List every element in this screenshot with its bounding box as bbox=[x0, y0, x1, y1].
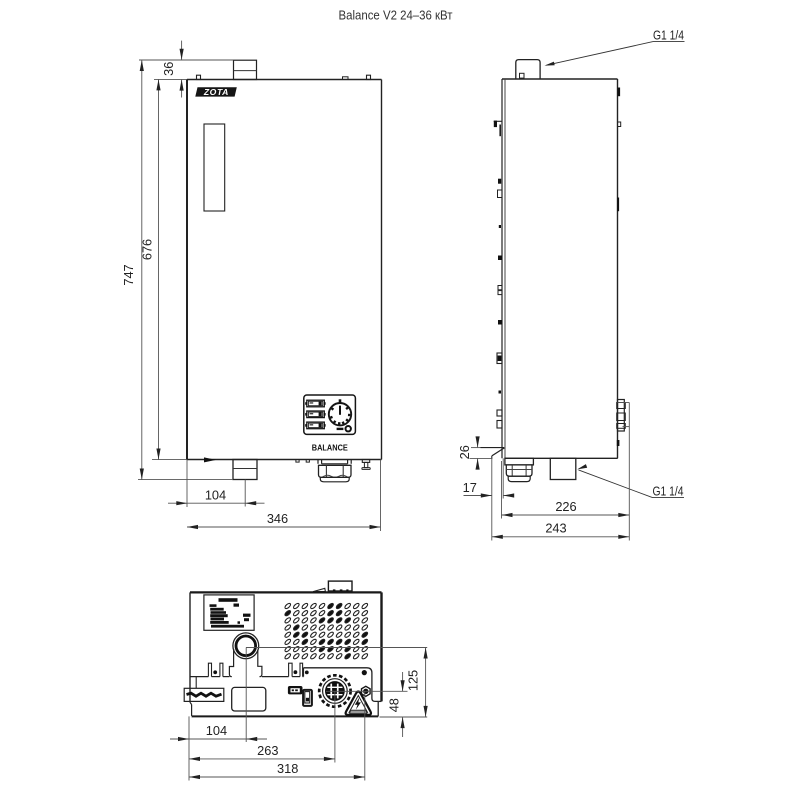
svg-text:676: 676 bbox=[140, 239, 155, 260]
svg-text:747: 747 bbox=[121, 264, 136, 285]
svg-text:226: 226 bbox=[555, 499, 576, 514]
svg-text:ZOTA: ZOTA bbox=[203, 87, 229, 97]
svg-text:104: 104 bbox=[206, 723, 227, 738]
svg-text:243: 243 bbox=[545, 521, 566, 536]
svg-text:346: 346 bbox=[267, 511, 288, 526]
svg-text:G1 1/4: G1 1/4 bbox=[653, 28, 684, 42]
svg-text:318: 318 bbox=[277, 761, 298, 776]
svg-text:26: 26 bbox=[457, 445, 472, 459]
svg-text:48: 48 bbox=[386, 698, 401, 712]
svg-text:BALANCE: BALANCE bbox=[312, 443, 348, 452]
svg-text:G1 1/4: G1 1/4 bbox=[653, 484, 684, 498]
svg-text:104: 104 bbox=[205, 488, 226, 503]
svg-text:263: 263 bbox=[257, 743, 278, 758]
svg-text:Balance V2 24–36 кВт: Balance V2 24–36 кВт bbox=[339, 8, 453, 23]
svg-text:17: 17 bbox=[463, 480, 477, 495]
svg-text:125: 125 bbox=[405, 670, 420, 691]
svg-text:36: 36 bbox=[161, 62, 176, 76]
